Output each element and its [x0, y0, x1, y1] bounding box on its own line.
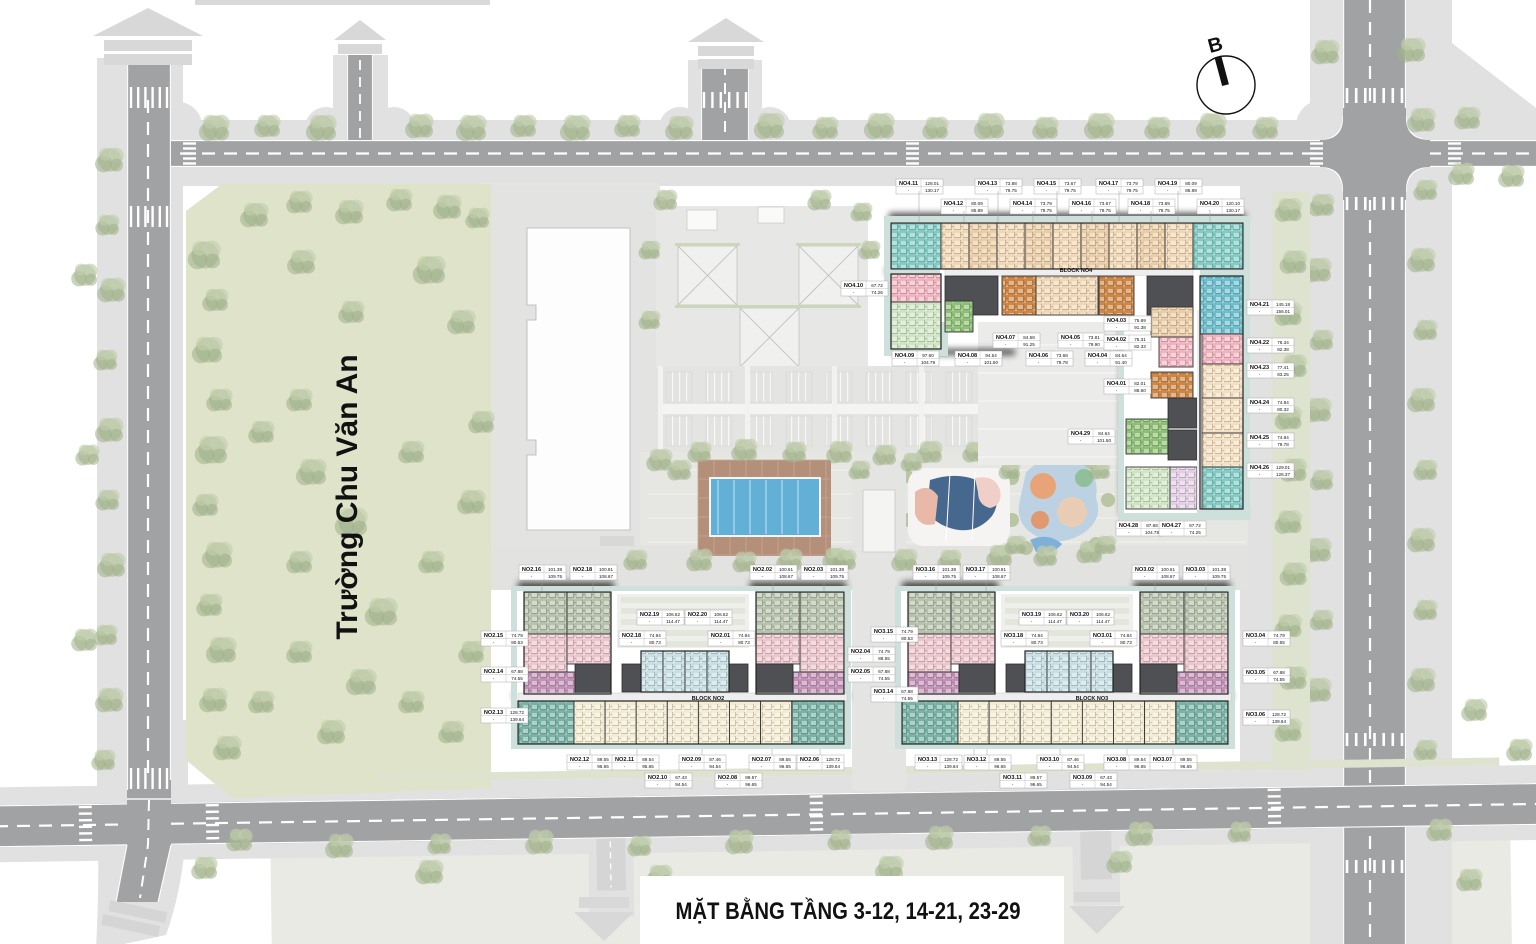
- svg-text:79.75: 79.75: [1158, 208, 1170, 213]
- svg-text:79.75: 79.75: [1099, 208, 1111, 213]
- svg-text:NO3.20: NO3.20: [1070, 612, 1089, 618]
- svg-text:89.54: 89.54: [1134, 757, 1146, 762]
- svg-text:NO4.26: NO4.26: [1250, 465, 1269, 471]
- svg-text:73.81: 73.81: [1088, 335, 1100, 340]
- svg-text:NO3.09: NO3.09: [1073, 775, 1092, 781]
- svg-text:94.54: 94.54: [1067, 764, 1079, 769]
- svg-text:NO2.16: NO2.16: [522, 567, 541, 573]
- svg-text:89.57: 89.57: [745, 775, 757, 780]
- svg-text:NO3.01: NO3.01: [1093, 633, 1112, 639]
- svg-text:73.79: 73.79: [1126, 181, 1138, 186]
- svg-text:NO2.12: NO2.12: [570, 757, 589, 763]
- svg-text:67.72: 67.72: [871, 283, 883, 288]
- svg-text:NO3.15: NO3.15: [874, 629, 893, 635]
- svg-text:74.84: 74.84: [1031, 633, 1043, 638]
- svg-text:94.54: 94.54: [675, 782, 687, 787]
- svg-text:73.68: 73.68: [1056, 353, 1068, 358]
- svg-text:NO4.11: NO4.11: [899, 181, 918, 187]
- svg-text:NO3.10: NO3.10: [1040, 757, 1059, 763]
- svg-text:NO4.19: NO4.19: [1158, 181, 1177, 187]
- svg-text:74.26: 74.26: [871, 290, 883, 295]
- svg-text:130.17: 130.17: [925, 188, 939, 193]
- svg-text:67.88: 67.88: [901, 689, 913, 694]
- svg-text:NO4.21: NO4.21: [1250, 302, 1269, 308]
- svg-text:NO4.24: NO4.24: [1250, 400, 1270, 406]
- svg-text:94.54: 94.54: [985, 353, 997, 358]
- svg-text:114.47: 114.47: [1096, 619, 1110, 624]
- svg-text:89.57: 89.57: [1030, 775, 1042, 780]
- svg-text:80.09: 80.09: [1185, 181, 1197, 186]
- svg-text:94.54: 94.54: [1100, 782, 1112, 787]
- svg-text:NO2.07: NO2.07: [752, 757, 771, 763]
- svg-text:NO2.09: NO2.09: [682, 757, 701, 763]
- svg-text:96.65: 96.65: [1134, 764, 1146, 769]
- svg-text:89.55: 89.55: [994, 757, 1006, 762]
- svg-text:89.55: 89.55: [1180, 757, 1192, 762]
- svg-text:87.46: 87.46: [1067, 757, 1079, 762]
- svg-text:88.60: 88.60: [1134, 388, 1146, 393]
- svg-text:67.88: 67.88: [511, 669, 523, 674]
- svg-text:139.64: 139.64: [510, 717, 524, 722]
- svg-text:128.72: 128.72: [1272, 712, 1286, 717]
- svg-text:76.34: 76.34: [1277, 340, 1289, 345]
- svg-text:106.62: 106.62: [714, 612, 728, 617]
- svg-text:79.78: 79.78: [1277, 442, 1289, 447]
- svg-text:101.38: 101.38: [548, 567, 562, 572]
- svg-text:96.65: 96.65: [1030, 782, 1042, 787]
- svg-text:NO2.03: NO2.03: [804, 567, 823, 573]
- svg-text:NO4.03: NO4.03: [1107, 318, 1126, 324]
- svg-text:104.79: 104.79: [921, 360, 935, 365]
- svg-text:73.79: 73.79: [1040, 201, 1052, 206]
- svg-text:104.79: 104.79: [1145, 530, 1159, 535]
- svg-text:NO2.20: NO2.20: [688, 612, 707, 618]
- svg-text:BLOCK NO2: BLOCK NO2: [692, 696, 724, 702]
- svg-text:67.88: 67.88: [1273, 670, 1285, 675]
- svg-text:NO3.06: NO3.06: [1246, 712, 1265, 718]
- svg-text:80.32: 80.32: [1277, 407, 1289, 412]
- svg-text:NO3.18: NO3.18: [1004, 633, 1023, 639]
- svg-text:96.65: 96.65: [597, 764, 609, 769]
- svg-text:101.38: 101.38: [830, 567, 844, 572]
- svg-text:74.84: 74.84: [1277, 400, 1289, 405]
- svg-text:NO2.18: NO2.18: [573, 567, 592, 573]
- svg-text:80.73: 80.73: [1031, 640, 1043, 645]
- svg-text:NO4.12: NO4.12: [944, 201, 963, 207]
- svg-text:80.73: 80.73: [649, 640, 661, 645]
- svg-text:128.01: 128.01: [925, 181, 939, 186]
- svg-text:NO2.10: NO2.10: [648, 775, 667, 781]
- svg-text:84.58: 84.58: [1023, 335, 1035, 340]
- svg-text:NO4.16: NO4.16: [1072, 201, 1091, 207]
- svg-text:74.79: 74.79: [878, 649, 890, 654]
- svg-text:BLOCK NO4: BLOCK NO4: [1060, 268, 1093, 274]
- svg-text:145.18: 145.18: [1276, 302, 1290, 307]
- svg-text:94.54: 94.54: [709, 764, 721, 769]
- svg-text:106.62: 106.62: [1048, 612, 1062, 617]
- svg-text:NO4.15: NO4.15: [1037, 181, 1056, 187]
- svg-text:108.67: 108.67: [599, 574, 613, 579]
- svg-text:89.55: 89.55: [779, 757, 791, 762]
- svg-text:79.75: 79.75: [1040, 208, 1052, 213]
- svg-text:74.55: 74.55: [1273, 677, 1285, 682]
- svg-text:NO2.15: NO2.15: [484, 633, 503, 639]
- svg-text:139.64: 139.64: [1272, 719, 1286, 724]
- svg-text:NO3.19: NO3.19: [1022, 612, 1041, 618]
- svg-text:79.75: 79.75: [1126, 188, 1138, 193]
- svg-text:NO4.14: NO4.14: [1013, 201, 1033, 207]
- svg-text:NO4.29: NO4.29: [1071, 431, 1090, 437]
- svg-text:79.75: 79.75: [1064, 188, 1076, 193]
- svg-text:NO3.17: NO3.17: [966, 567, 985, 573]
- svg-text:156.01: 156.01: [1276, 309, 1290, 314]
- svg-text:74.55: 74.55: [901, 696, 913, 701]
- svg-text:80.73: 80.73: [738, 640, 750, 645]
- svg-text:67.43: 67.43: [1100, 775, 1112, 780]
- svg-text:108.67: 108.67: [1161, 574, 1175, 579]
- svg-text:100.81: 100.81: [992, 567, 1006, 572]
- svg-text:77.41: 77.41: [1277, 365, 1289, 370]
- svg-text:NO2.08: NO2.08: [718, 775, 737, 781]
- svg-text:114.47: 114.47: [714, 619, 728, 624]
- svg-text:74.79: 74.79: [901, 629, 913, 634]
- svg-text:MẶT BẰNG TẦNG 3-12, 14-21, 23-: MẶT BẰNG TẦNG 3-12, 14-21, 23-29: [676, 897, 1021, 925]
- svg-text:74.25: 74.25: [1189, 530, 1201, 535]
- svg-text:96.65: 96.65: [994, 764, 1006, 769]
- svg-text:85.89: 85.89: [1185, 188, 1197, 193]
- svg-text:NO4.05: NO4.05: [1061, 335, 1080, 341]
- svg-text:80.53: 80.53: [511, 640, 523, 645]
- svg-text:74.84: 74.84: [1277, 435, 1289, 440]
- svg-text:128.72: 128.72: [826, 757, 840, 762]
- svg-text:101.50: 101.50: [984, 360, 998, 365]
- svg-text:120.10: 120.10: [1226, 201, 1240, 206]
- svg-text:67.88: 67.88: [878, 669, 890, 674]
- svg-text:101.38: 101.38: [942, 567, 956, 572]
- svg-text:89.55: 89.55: [597, 757, 609, 762]
- svg-text:106.62: 106.62: [1096, 612, 1110, 617]
- svg-text:76.31: 76.31: [1134, 337, 1146, 342]
- svg-text:73.67: 73.67: [1099, 201, 1111, 206]
- svg-text:NO3.12: NO3.12: [967, 757, 986, 763]
- svg-text:126.37: 126.37: [1276, 472, 1290, 477]
- svg-text:109.75: 109.75: [1212, 574, 1226, 579]
- svg-text:139.64: 139.64: [826, 764, 840, 769]
- svg-text:96.65: 96.65: [1180, 764, 1192, 769]
- svg-text:NO2.02: NO2.02: [753, 567, 772, 573]
- svg-text:84.64: 84.64: [1098, 431, 1110, 436]
- svg-text:67.43: 67.43: [675, 775, 687, 780]
- svg-text:NO2.05: NO2.05: [851, 669, 870, 675]
- svg-text:82.01: 82.01: [1134, 381, 1146, 386]
- svg-text:82.33: 82.33: [1134, 344, 1146, 349]
- svg-text:108.67: 108.67: [992, 574, 1006, 579]
- svg-text:128.72: 128.72: [510, 710, 524, 715]
- svg-text:NO3.16: NO3.16: [916, 567, 935, 573]
- svg-text:NO2.06: NO2.06: [800, 757, 819, 763]
- svg-text:NO4.13: NO4.13: [978, 181, 997, 187]
- svg-text:108.67: 108.67: [779, 574, 793, 579]
- svg-text:NO2.11: NO2.11: [615, 757, 634, 763]
- svg-text:85.89: 85.89: [971, 208, 983, 213]
- svg-text:106.62: 106.62: [666, 612, 680, 617]
- svg-text:74.84: 74.84: [1120, 633, 1132, 638]
- svg-text:79.90: 79.90: [1088, 342, 1100, 347]
- svg-text:87.68: 87.68: [1146, 523, 1158, 528]
- svg-text:80.73: 80.73: [1120, 640, 1132, 645]
- svg-text:74.94: 74.94: [738, 633, 750, 638]
- svg-text:129.01: 129.01: [1276, 465, 1290, 470]
- svg-text:NO3.04: NO3.04: [1246, 633, 1266, 639]
- svg-text:80.09: 80.09: [971, 201, 983, 206]
- svg-text:NO4.06: NO4.06: [1029, 353, 1048, 359]
- svg-text:NO4.04: NO4.04: [1088, 353, 1108, 359]
- svg-text:NO4.07: NO4.07: [996, 335, 1015, 341]
- svg-text:NO4.27: NO4.27: [1162, 523, 1181, 529]
- svg-text:96.65: 96.65: [745, 782, 757, 787]
- svg-text:73.67: 73.67: [1064, 181, 1076, 186]
- svg-text:NO4.23: NO4.23: [1250, 365, 1269, 371]
- svg-text:NO2.19: NO2.19: [640, 612, 659, 618]
- svg-text:NO2.04: NO2.04: [851, 649, 871, 655]
- svg-text:73.88: 73.88: [1005, 181, 1017, 186]
- svg-text:NO4.28: NO4.28: [1119, 523, 1138, 529]
- svg-text:NO3.03: NO3.03: [1186, 567, 1205, 573]
- svg-text:80.55: 80.55: [1273, 640, 1285, 645]
- svg-text:NO4.01: NO4.01: [1107, 381, 1126, 387]
- svg-text:NO3.11: NO3.11: [1003, 775, 1022, 781]
- svg-text:73.89: 73.89: [1158, 201, 1170, 206]
- svg-text:NO4.25: NO4.25: [1250, 435, 1269, 441]
- svg-text:NO2.14: NO2.14: [484, 669, 504, 675]
- svg-text:101.50: 101.50: [1097, 438, 1111, 443]
- svg-text:100.81: 100.81: [599, 567, 613, 572]
- svg-text:109.75: 109.75: [830, 574, 844, 579]
- svg-text:100.61: 100.61: [779, 567, 793, 572]
- svg-text:83.25: 83.25: [1277, 372, 1289, 377]
- svg-text:NO4.02: NO4.02: [1107, 337, 1126, 343]
- svg-text:NO4.17: NO4.17: [1099, 181, 1118, 187]
- svg-text:91.25: 91.25: [1023, 342, 1035, 347]
- svg-text:NO2.18: NO2.18: [622, 633, 641, 639]
- svg-text:130.17: 130.17: [1226, 208, 1240, 213]
- svg-text:96.65: 96.65: [779, 764, 791, 769]
- svg-text:NO4.08: NO4.08: [958, 353, 977, 359]
- svg-text:NO4.22: NO4.22: [1250, 340, 1269, 346]
- svg-text:NO4.20: NO4.20: [1200, 201, 1219, 207]
- svg-text:109.75: 109.75: [942, 574, 956, 579]
- svg-text:NO3.05: NO3.05: [1246, 670, 1265, 676]
- svg-text:NO3.13: NO3.13: [918, 757, 937, 763]
- svg-text:139.64: 139.64: [944, 764, 958, 769]
- svg-text:BLOCK NO3: BLOCK NO3: [1076, 696, 1108, 702]
- svg-text:97.60: 97.60: [922, 353, 934, 358]
- svg-text:74.94: 74.94: [649, 633, 661, 638]
- svg-text:95.65: 95.65: [642, 764, 654, 769]
- svg-text:100.61: 100.61: [1161, 567, 1175, 572]
- svg-text:67.72: 67.72: [1189, 523, 1201, 528]
- svg-text:NO2.01: NO2.01: [711, 633, 730, 639]
- svg-text:NO3.07: NO3.07: [1153, 757, 1172, 763]
- svg-text:89.54: 89.54: [642, 757, 654, 762]
- svg-text:91.40: 91.40: [1115, 360, 1127, 365]
- svg-text:NO4.09: NO4.09: [895, 353, 914, 359]
- svg-text:88.55: 88.55: [878, 656, 890, 661]
- svg-text:Trường Chu Văn An: Trường Chu Văn An: [331, 354, 364, 639]
- svg-text:80.53: 80.53: [901, 636, 913, 641]
- svg-text:114.47: 114.47: [666, 619, 680, 624]
- svg-text:NO2.13: NO2.13: [484, 710, 503, 716]
- svg-text:79.78: 79.78: [1056, 360, 1068, 365]
- svg-text:82.38: 82.38: [1277, 347, 1289, 352]
- svg-text:109.75: 109.75: [548, 574, 562, 579]
- svg-text:114.47: 114.47: [1048, 619, 1062, 624]
- svg-text:79.75: 79.75: [1005, 188, 1017, 193]
- svg-text:NO3.08: NO3.08: [1107, 757, 1126, 763]
- svg-text:74.55: 74.55: [511, 676, 523, 681]
- svg-text:NO4.10: NO4.10: [844, 283, 863, 289]
- svg-text:128.72: 128.72: [944, 757, 958, 762]
- svg-text:NO3.14: NO3.14: [874, 689, 894, 695]
- svg-text:74.79: 74.79: [1273, 633, 1285, 638]
- svg-text:87.46: 87.46: [709, 757, 721, 762]
- svg-text:75.69: 75.69: [1134, 318, 1146, 323]
- svg-text:91.38: 91.38: [1134, 325, 1146, 330]
- svg-text:74.55: 74.55: [878, 676, 890, 681]
- svg-text:101.38: 101.38: [1212, 567, 1226, 572]
- svg-text:NO4.18: NO4.18: [1131, 201, 1150, 207]
- svg-text:84.64: 84.64: [1115, 353, 1127, 358]
- svg-text:NO3.02: NO3.02: [1135, 567, 1154, 573]
- svg-text:74.79: 74.79: [511, 633, 523, 638]
